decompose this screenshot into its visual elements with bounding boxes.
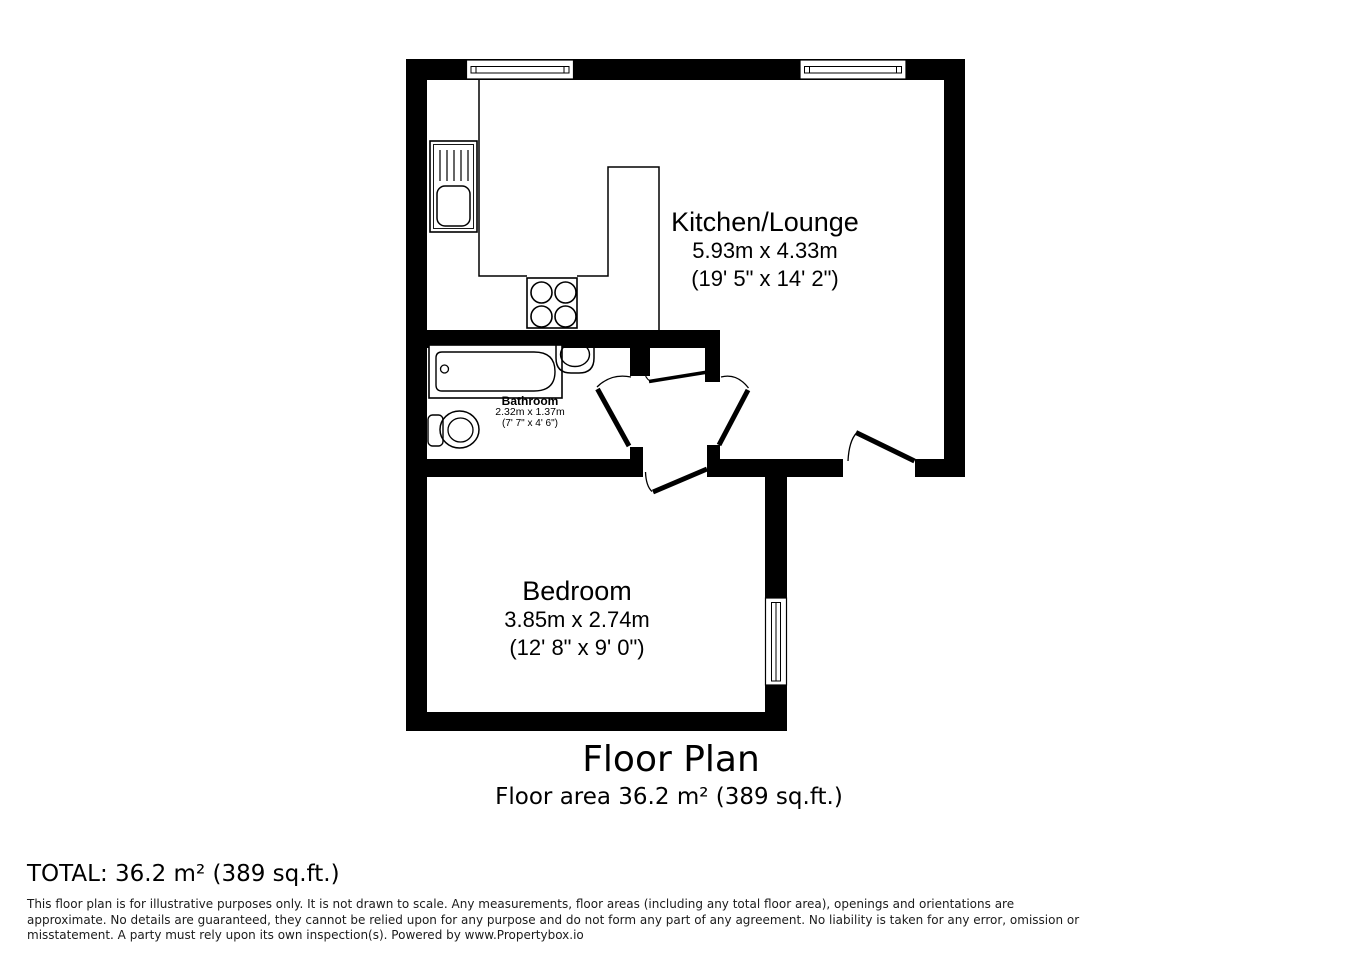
wall-bathroom-right-upper [630, 348, 650, 376]
room-dim-imperial: (12' 8" x 9' 0") [504, 634, 650, 662]
window-bedroom [766, 598, 787, 685]
closet-door [645, 371, 712, 382]
bedroom-door [646, 469, 708, 492]
window-kitchen-left [467, 60, 574, 79]
wall-bedroom-right-lower [765, 685, 787, 712]
entrance-door [848, 433, 915, 462]
disclaimer-line: This floor plan is for illustrative purp… [27, 897, 1079, 913]
room-name: Bedroom [504, 576, 650, 606]
disclaimer-line: approximate. No details are guaranteed, … [27, 913, 1079, 929]
room-dim-metric: 2.32m x 1.37m [495, 407, 564, 418]
hall-lounge-door [719, 376, 749, 445]
wall-left [406, 59, 427, 731]
room-dim-metric: 5.93m x 4.33m [671, 237, 859, 265]
bathroom-label: Bathroom 2.32m x 1.37m (7' 7" x 4' 6") [495, 395, 564, 429]
floor-plan-page: Kitchen/Lounge 5.93m x 4.33m (19' 5" x 1… [0, 0, 1372, 960]
kitchen-fixtures [430, 80, 659, 330]
room-dim-imperial: (19' 5" x 14' 2") [671, 265, 859, 293]
disclaimer-text: This floor plan is for illustrative purp… [27, 897, 1079, 944]
room-name: Kitchen/Lounge [671, 207, 859, 237]
wall-closet-right [705, 348, 720, 382]
wall-bedroom-bottom [406, 712, 787, 731]
total-area-text: TOTAL: 36.2 m² (389 sq.ft.) [27, 860, 340, 888]
wall-right [944, 59, 965, 477]
plan-title: Floor Plan [582, 741, 760, 779]
disclaimer-line: misstatement. A party must rely upon its… [27, 928, 1079, 944]
kitchen-sink [430, 141, 477, 232]
window-lounge-right [800, 60, 906, 79]
wall-bedroom-top-right [707, 459, 843, 477]
bathtub [429, 345, 562, 398]
kitchen-lounge-label: Kitchen/Lounge 5.93m x 4.33m (19' 5" x 1… [671, 207, 859, 293]
room-dim-imperial: (7' 7" x 4' 6") [495, 418, 564, 429]
wall-bathroom-right-stub [630, 447, 643, 459]
toilet [428, 411, 479, 448]
wall-bedroom-top-left [406, 459, 643, 477]
bathroom-door [597, 376, 631, 446]
plan-floor-area: Floor area 36.2 m² (389 sq.ft.) [495, 784, 843, 810]
floor-plan-drawing [0, 0, 1372, 850]
room-dim-metric: 3.85m x 2.74m [504, 606, 650, 634]
wall-lounge-bottom-right [915, 459, 965, 477]
wall-hall-door-stub [707, 445, 720, 459]
hob [527, 278, 577, 328]
wall-bedroom-right-upper [765, 477, 787, 598]
bedroom-label: Bedroom 3.85m x 2.74m (12' 8" x 9' 0") [504, 576, 650, 662]
